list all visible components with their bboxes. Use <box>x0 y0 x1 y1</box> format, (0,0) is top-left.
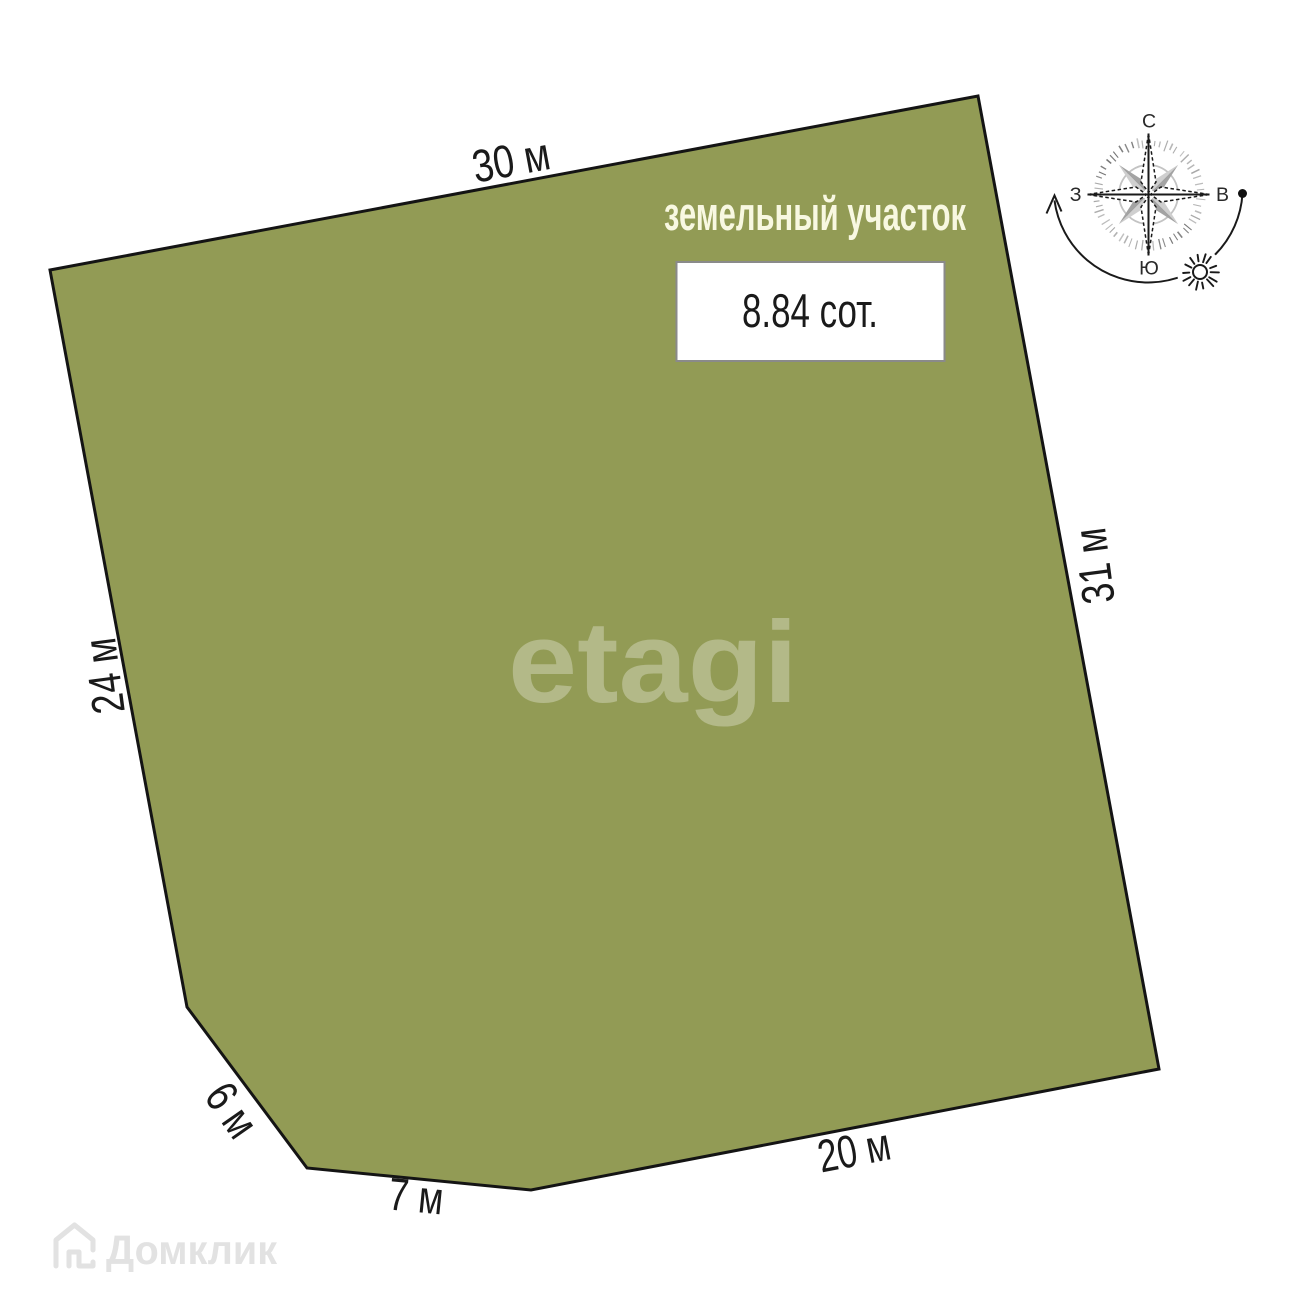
svg-text:Домклик: Домклик <box>106 1227 277 1273</box>
svg-text:С: С <box>1142 111 1156 133</box>
svg-text:etagi: etagi <box>508 597 798 727</box>
svg-text:24 м: 24 м <box>73 635 134 717</box>
svg-text:В: В <box>1216 184 1229 206</box>
svg-text:З: З <box>1070 184 1082 206</box>
svg-text:8.84 сот.: 8.84 сот. <box>742 284 878 337</box>
svg-text:Ю: Ю <box>1139 258 1159 280</box>
svg-text:31 м: 31 м <box>1063 525 1124 607</box>
svg-text:7 м: 7 м <box>386 1167 446 1224</box>
svg-text:земельный участок: земельный участок <box>664 187 966 240</box>
